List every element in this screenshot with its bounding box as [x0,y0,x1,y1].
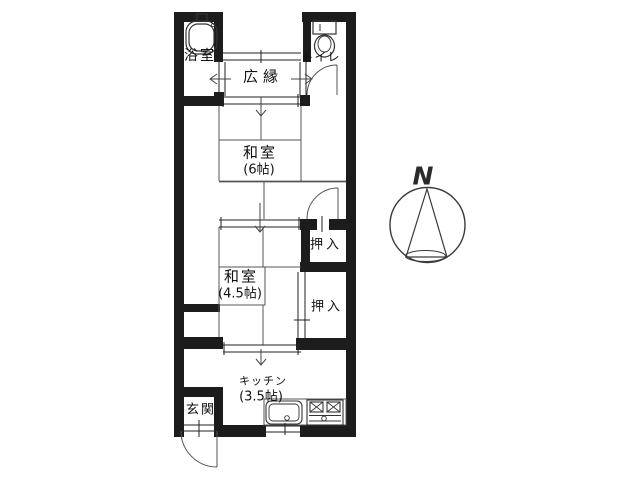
room-label-entrance: 玄関 [186,404,216,417]
north-compass-icon [390,188,465,263]
arrow-down-kitchen-icon [256,349,266,365]
wall-below-closet-lower [296,338,356,350]
wall-bottom-a [214,425,266,437]
sliding-door-closet-lower [294,272,310,338]
sliding-door-room45-kitchen [223,342,301,355]
room-size-japanese-room-4-5: (4.5帖) [218,288,262,301]
wall-stub-veranda-right [300,95,310,106]
wall-corridor-right-b [329,219,346,230]
room-size-kitchen: (3.5帖) [239,391,283,404]
wall-left [174,12,184,437]
window-veranda-top [222,50,301,63]
room-label-japanese-room-4-5: 和室 [224,270,258,285]
floorplan-canvas: 浴室 広縁 トイレ 和室 (6帖) 押入 和室 (4.5帖) 押入 キッチン (… [0,0,640,480]
room-label-bathroom: 浴室 [184,49,216,63]
entrance-threshold [182,420,216,437]
door-arc-toilet [307,65,337,95]
door-arc-corridor [307,188,338,219]
room-label-closet-lower: 押入 [311,301,343,314]
room-label-kitchen: キッチン [239,376,287,387]
wall-bathroom-bottom [176,96,218,106]
compass-north-label: N [413,164,434,189]
room-label-toilet: トイレ [301,51,340,63]
wall-bottom-b [300,425,356,437]
room-label-closet-upper: 押入 [310,239,342,252]
wall-corridor-right-a [300,219,317,230]
wall-right [346,12,356,437]
room-label-veranda: 広縁 [243,70,283,85]
wall-kitchen-top-left [174,337,223,349]
arrow-right-icon [291,74,312,84]
room-size-japanese-room-6: (6帖) [243,164,274,177]
wall-between-closets [300,262,346,272]
wall-closet-upper-left [301,230,310,262]
wall-side-corridor [174,304,220,312]
arrow-down-veranda-icon [256,97,266,116]
room-label-japanese-room-6: 和室 [243,146,277,161]
sliding-door-veranda-room6 [223,94,301,107]
arrow-left-icon [210,74,231,84]
stove-icon [307,400,343,425]
